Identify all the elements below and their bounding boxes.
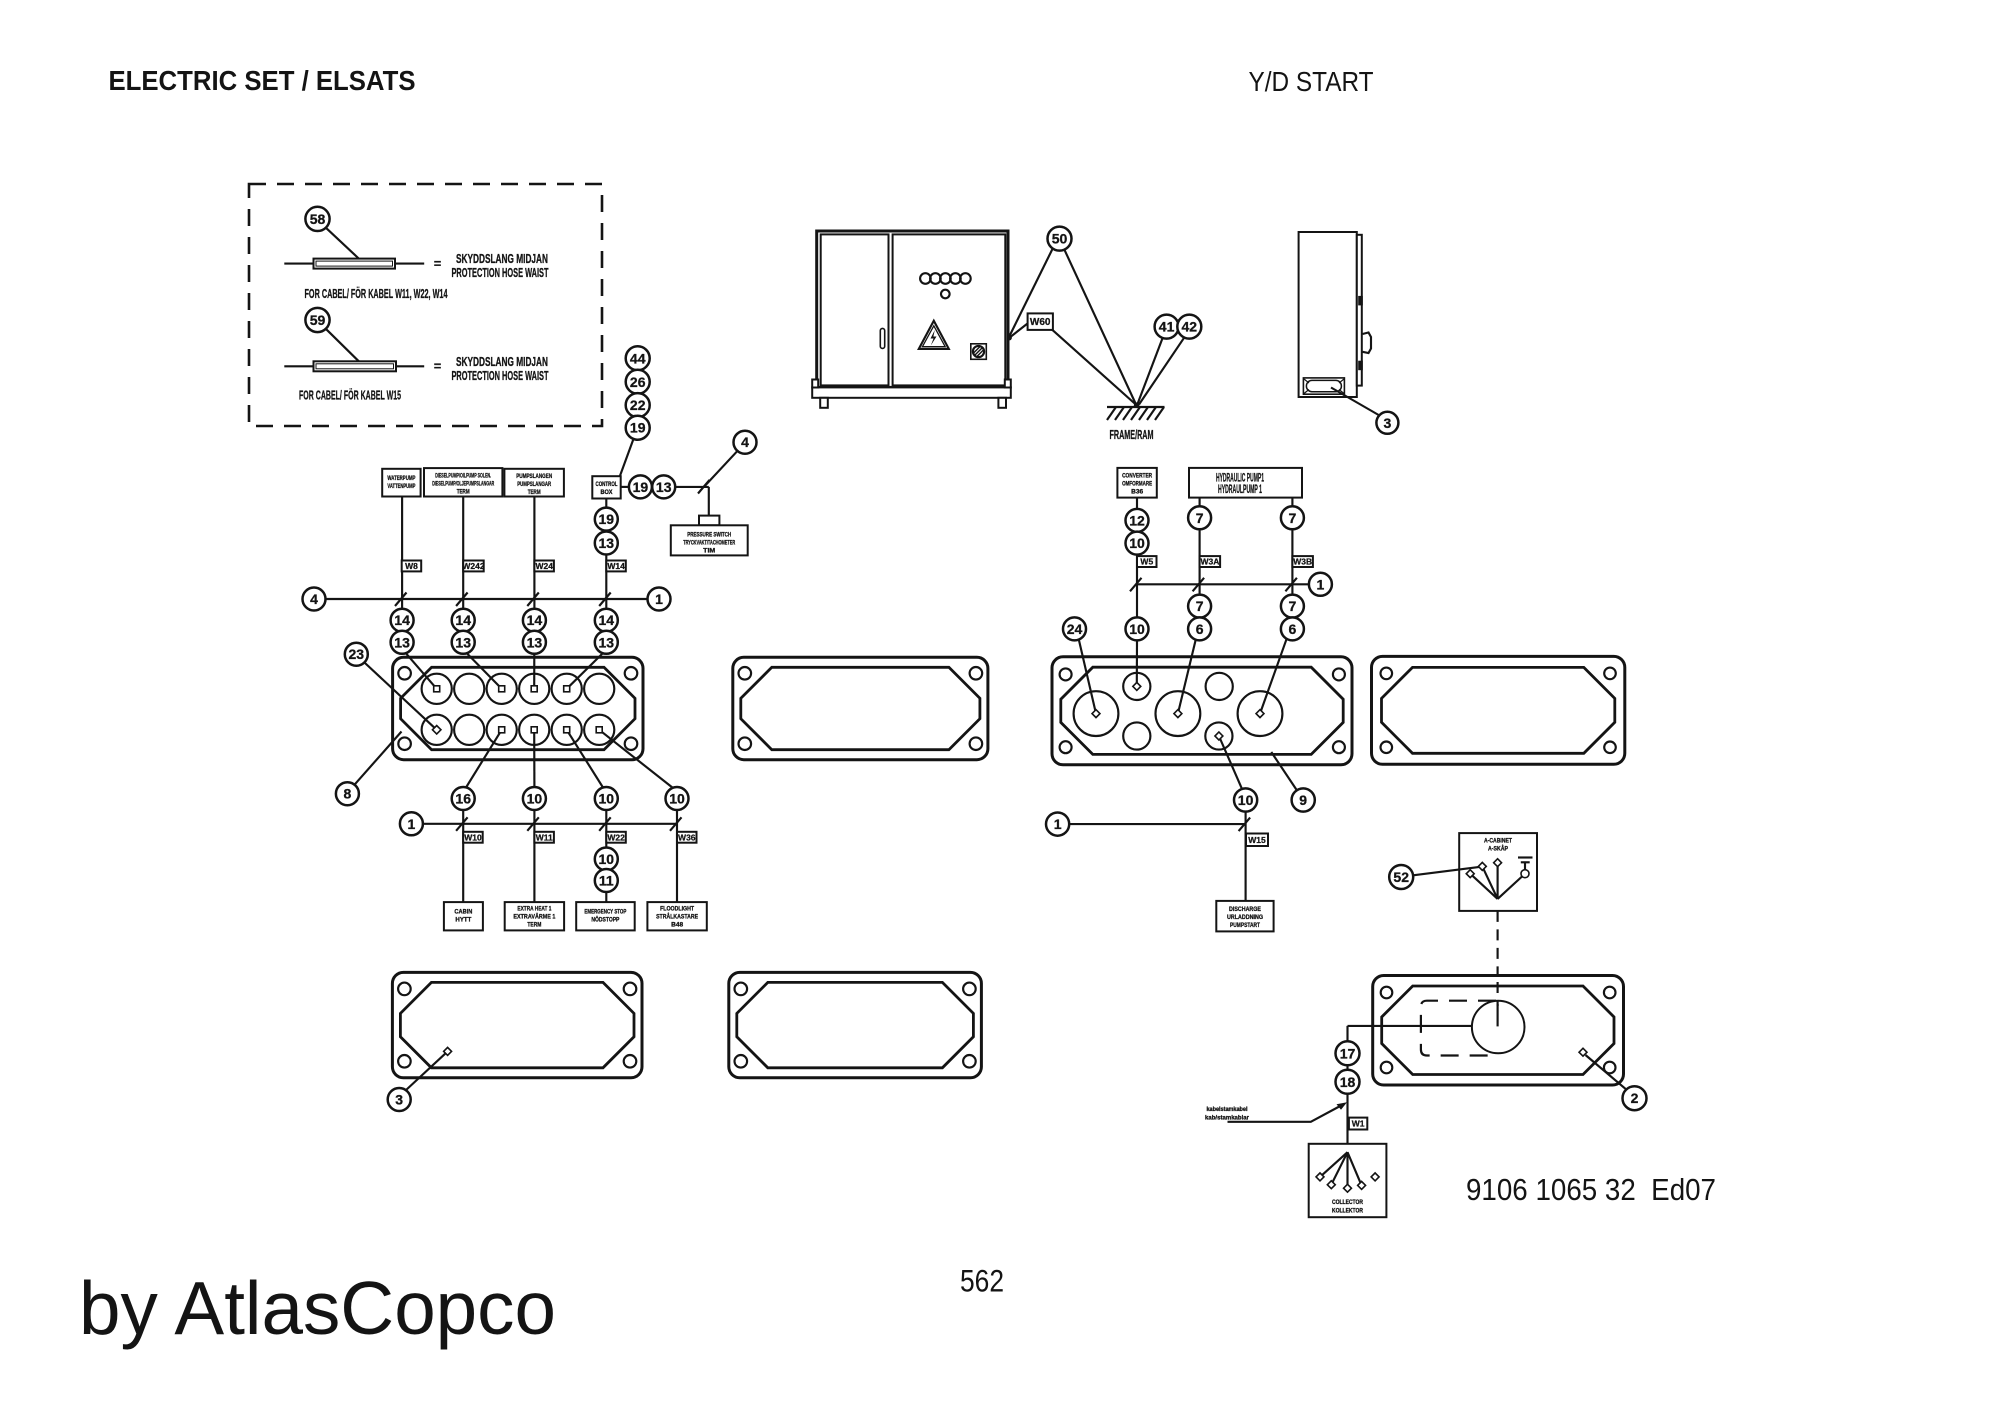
svg-text:TERM: TERM <box>528 489 541 496</box>
svg-text:W14: W14 <box>607 561 625 571</box>
svg-text:13: 13 <box>527 634 543 650</box>
svg-text:50: 50 <box>1052 231 1068 247</box>
svg-text:12: 12 <box>1129 512 1145 528</box>
svg-text:9: 9 <box>1299 792 1307 808</box>
svg-text:9106 1065 32 Ed07: 9106 1065 32 Ed07 <box>1466 1172 1716 1207</box>
svg-text:6: 6 <box>1196 621 1204 637</box>
svg-text:13: 13 <box>599 535 615 551</box>
svg-text:W8: W8 <box>405 561 418 571</box>
svg-text:10: 10 <box>599 791 615 807</box>
svg-text:7: 7 <box>1196 510 1204 526</box>
svg-text:58: 58 <box>310 211 326 227</box>
svg-text:TRYCKVAKT/TACHOMETER: TRYCKVAKT/TACHOMETER <box>683 540 735 547</box>
svg-text:=: = <box>434 257 441 271</box>
svg-text:14: 14 <box>394 612 410 628</box>
svg-text:14: 14 <box>527 612 543 628</box>
svg-text:17: 17 <box>1340 1045 1356 1061</box>
svg-text:19: 19 <box>630 420 646 436</box>
svg-text:A-SKÅP: A-SKÅP <box>1488 844 1508 853</box>
svg-text:STRÅLKASTARE: STRÅLKASTARE <box>656 912 698 921</box>
svg-text:562: 562 <box>960 1263 1004 1299</box>
svg-text:SKYDDSLANG MIDJAN: SKYDDSLANG MIDJAN <box>456 252 548 266</box>
svg-text:6: 6 <box>1289 621 1297 637</box>
svg-text:10: 10 <box>527 791 543 807</box>
svg-text:CONVERTER: CONVERTER <box>1122 472 1152 479</box>
svg-text:13: 13 <box>394 634 410 650</box>
svg-text:TERM: TERM <box>457 489 470 496</box>
svg-text:PUMPSLANGEN: PUMPSLANGEN <box>516 473 552 480</box>
svg-text:W24: W24 <box>535 561 553 571</box>
svg-text:A-CABINET: A-CABINET <box>1484 838 1512 845</box>
svg-text:W1: W1 <box>1352 1119 1365 1129</box>
svg-text:10: 10 <box>1238 792 1254 808</box>
svg-text:DIESELPUMP/OLJEPUMPSLANGAR: DIESELPUMP/OLJEPUMPSLANGAR <box>432 481 494 488</box>
svg-text:24: 24 <box>1067 621 1083 637</box>
svg-text:by AtlasCopco: by AtlasCopco <box>79 1266 556 1350</box>
svg-text:W5: W5 <box>1140 557 1153 567</box>
svg-text:FRAME/RAM: FRAME/RAM <box>1110 428 1154 442</box>
svg-text:10: 10 <box>669 791 685 807</box>
svg-text:PUMPSLANGAR: PUMPSLANGAR <box>517 481 551 488</box>
svg-text:W36: W36 <box>678 832 696 842</box>
svg-text:19: 19 <box>599 511 615 527</box>
svg-text:4: 4 <box>310 591 318 607</box>
svg-text:W22: W22 <box>607 832 625 842</box>
svg-text:23: 23 <box>349 646 365 662</box>
svg-text:SKYDDSLANG MIDJAN: SKYDDSLANG MIDJAN <box>456 355 548 369</box>
svg-text:EXTRAVÄRME 1: EXTRAVÄRME 1 <box>513 913 555 921</box>
svg-text:3: 3 <box>1384 415 1392 431</box>
svg-text:W10: W10 <box>464 832 482 842</box>
svg-text:EMERGENCY STOP: EMERGENCY STOP <box>584 909 626 916</box>
svg-text:14: 14 <box>599 612 615 628</box>
svg-text:14: 14 <box>455 612 471 628</box>
svg-text:1: 1 <box>1317 576 1325 592</box>
svg-text:10: 10 <box>1129 621 1145 637</box>
svg-text:2: 2 <box>1631 1090 1639 1106</box>
svg-text:W15: W15 <box>1248 835 1266 845</box>
svg-text:CONTROL: CONTROL <box>596 481 618 488</box>
svg-text:FLOODLIGHT: FLOODLIGHT <box>660 906 694 913</box>
svg-text:11: 11 <box>599 873 614 889</box>
svg-text:DISCHARGE: DISCHARGE <box>1229 906 1261 913</box>
svg-text:KOLLEKTOR: KOLLEKTOR <box>1332 1208 1363 1215</box>
svg-text:Y/D START: Y/D START <box>1249 66 1374 97</box>
svg-text:PROTECTION HOSE WAIST: PROTECTION HOSE WAIST <box>452 369 549 383</box>
svg-text:1: 1 <box>1054 816 1062 832</box>
svg-text:HYTT: HYTT <box>455 917 471 924</box>
svg-text:OMFORMARE: OMFORMARE <box>1122 480 1152 487</box>
svg-text:FOR CABEL/ FÖR KABEL W11, W22,: FOR CABEL/ FÖR KABEL W11, W22, W14 <box>305 286 448 301</box>
svg-text:7: 7 <box>1289 510 1297 526</box>
svg-text:42: 42 <box>1182 319 1198 335</box>
svg-text:13: 13 <box>656 479 672 495</box>
svg-text:PRESSURE SWITCH: PRESSURE SWITCH <box>687 532 731 539</box>
svg-text:22: 22 <box>630 397 646 413</box>
svg-text:7: 7 <box>1289 598 1297 614</box>
svg-text:DIESELPUMP/OILPUMP SOLEN.: DIESELPUMP/OILPUMP SOLEN. <box>435 473 491 480</box>
svg-text:41: 41 <box>1159 319 1175 335</box>
svg-text:B36: B36 <box>1131 488 1144 495</box>
svg-text:FOR CABEL/ FÖR KABEL W15: FOR CABEL/ FÖR KABEL W15 <box>299 388 401 403</box>
svg-text:CABIN: CABIN <box>454 909 472 916</box>
svg-text:1: 1 <box>655 591 663 607</box>
svg-text:8: 8 <box>344 786 352 802</box>
svg-text:BOX: BOX <box>601 489 614 496</box>
svg-text:19: 19 <box>633 479 649 495</box>
svg-text:10: 10 <box>1129 535 1145 551</box>
svg-text:13: 13 <box>455 634 471 650</box>
svg-text:W3B: W3B <box>1293 557 1312 567</box>
svg-text:1: 1 <box>408 816 416 832</box>
svg-text:EXTRA HEAT 1: EXTRA HEAT 1 <box>517 906 551 913</box>
svg-text:59: 59 <box>310 312 326 328</box>
svg-text:URLADDNING: URLADDNING <box>1227 914 1263 921</box>
svg-text:HYDRAULPUMP 1: HYDRAULPUMP 1 <box>1218 484 1262 496</box>
svg-text:kabelstamkabel: kabelstamkabel <box>1207 1106 1248 1113</box>
svg-text:W3A: W3A <box>1200 557 1219 567</box>
svg-text:10: 10 <box>599 851 615 867</box>
svg-text:16: 16 <box>455 791 471 807</box>
svg-text:3: 3 <box>395 1092 403 1108</box>
svg-text:HYDRAULIC PUMP1: HYDRAULIC PUMP1 <box>1216 473 1264 485</box>
svg-text:26: 26 <box>630 374 646 390</box>
svg-text:PROTECTION HOSE WAIST: PROTECTION HOSE WAIST <box>452 266 549 280</box>
svg-text:NÖDSTOPP: NÖDSTOPP <box>591 915 619 924</box>
svg-text:52: 52 <box>1393 869 1409 885</box>
svg-text:W60: W60 <box>1030 317 1051 328</box>
svg-text:PUMPSTART: PUMPSTART <box>1230 922 1260 929</box>
svg-text:ELECTRIC SET / ELSATS: ELECTRIC SET / ELSATS <box>109 65 416 96</box>
svg-text:=: = <box>434 360 441 374</box>
svg-text:W242: W242 <box>462 561 484 571</box>
svg-text:WATERPUMP: WATERPUMP <box>387 475 415 482</box>
svg-text:kab/stamkablar: kab/stamkablar <box>1205 1115 1250 1122</box>
svg-text:TERM: TERM <box>527 922 541 929</box>
svg-text:13: 13 <box>599 634 615 650</box>
svg-text:4: 4 <box>741 434 749 450</box>
svg-text:W11: W11 <box>536 832 553 842</box>
svg-text:TIM: TIM <box>703 548 715 555</box>
svg-text:18: 18 <box>1340 1074 1356 1090</box>
svg-text:7: 7 <box>1196 598 1204 614</box>
svg-text:B48: B48 <box>671 922 684 929</box>
svg-text:44: 44 <box>630 350 646 366</box>
svg-text:COLLECTOR: COLLECTOR <box>1332 1199 1363 1206</box>
svg-text:VATTENPUMP: VATTENPUMP <box>387 483 415 490</box>
